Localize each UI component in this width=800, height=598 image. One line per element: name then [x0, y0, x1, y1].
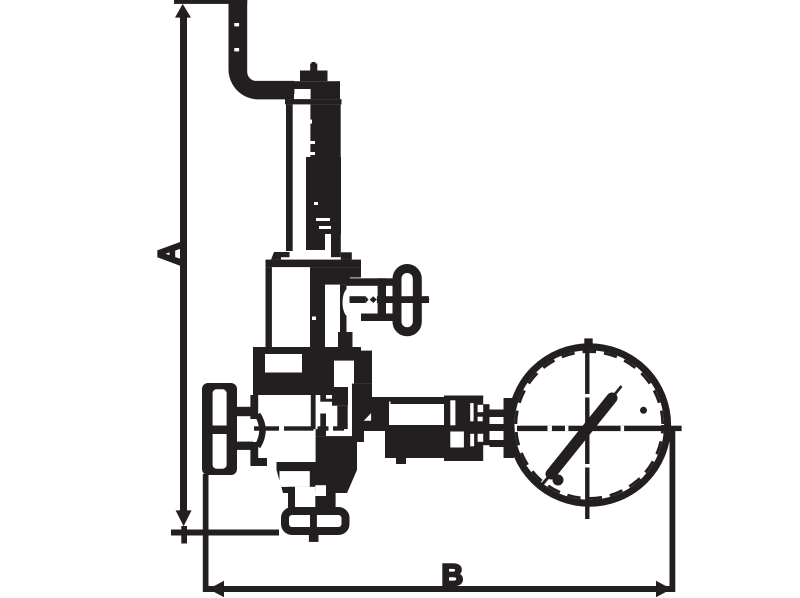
- svg-text:A: A: [152, 243, 187, 265]
- svg-text:B: B: [442, 559, 464, 592]
